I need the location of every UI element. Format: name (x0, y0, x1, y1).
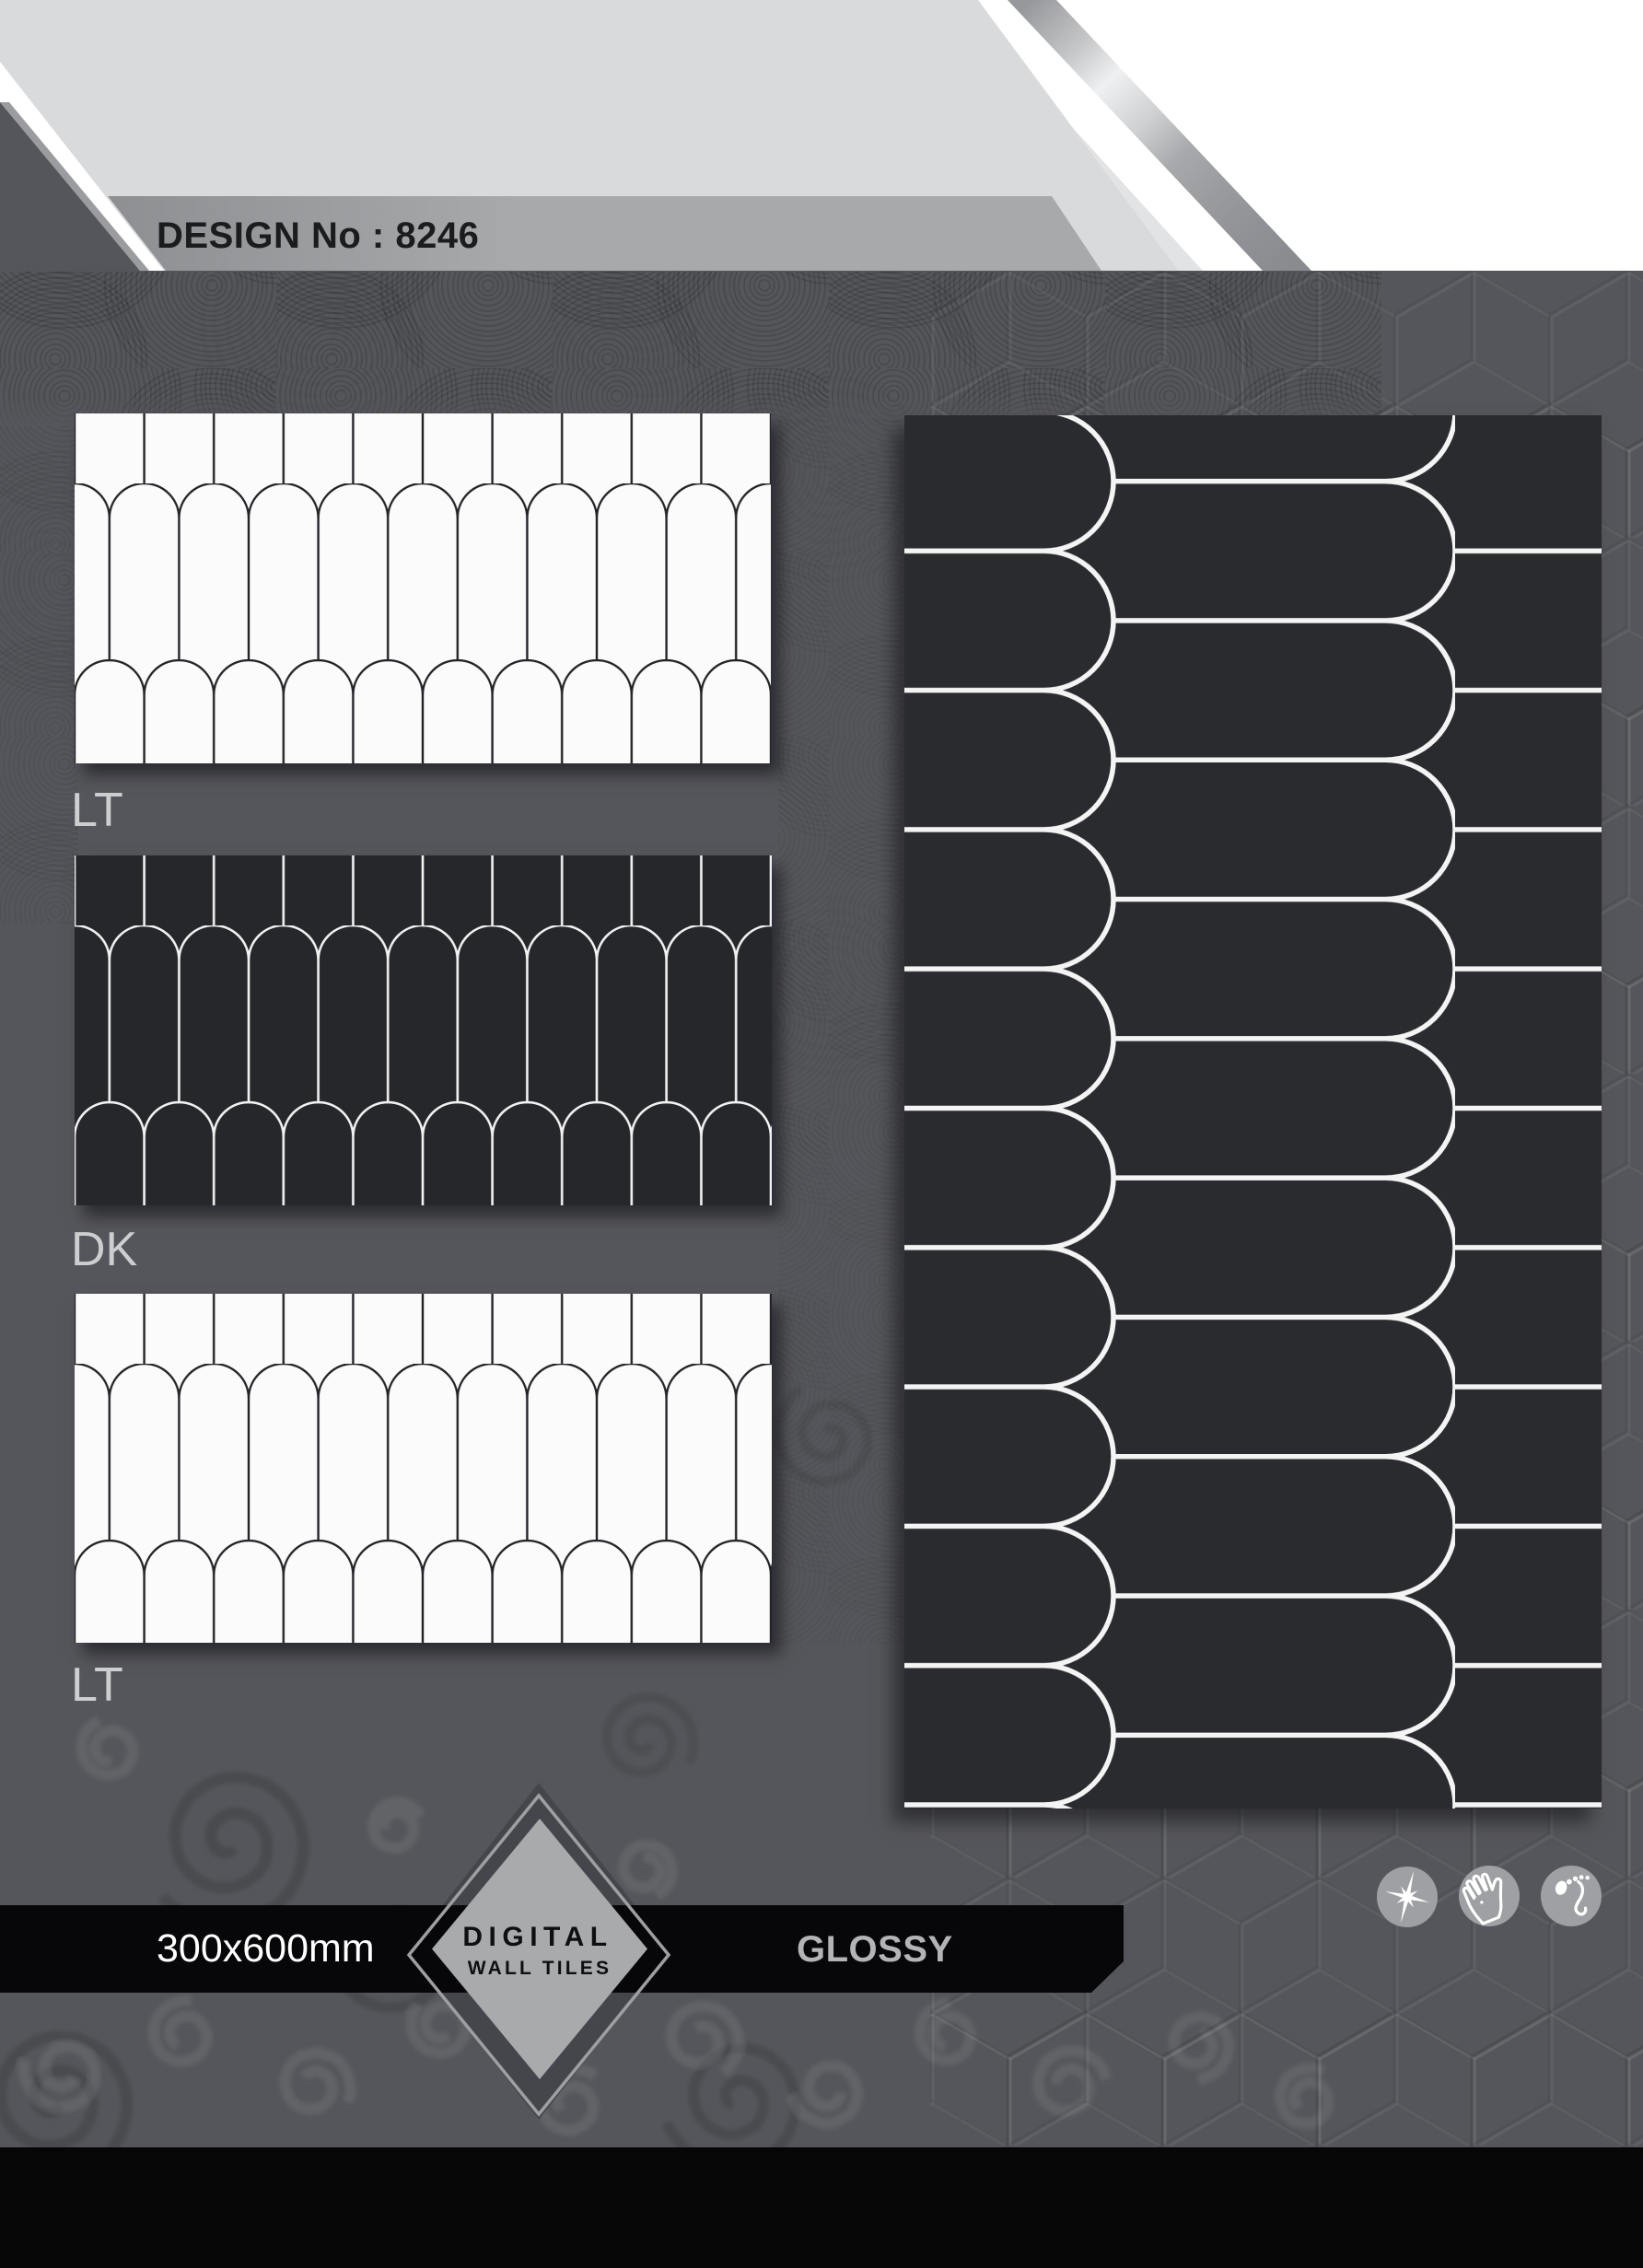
svg-text:DIGITAL: DIGITAL (462, 1922, 612, 1952)
svg-text:WALL TILES: WALL TILES (468, 1958, 612, 1979)
